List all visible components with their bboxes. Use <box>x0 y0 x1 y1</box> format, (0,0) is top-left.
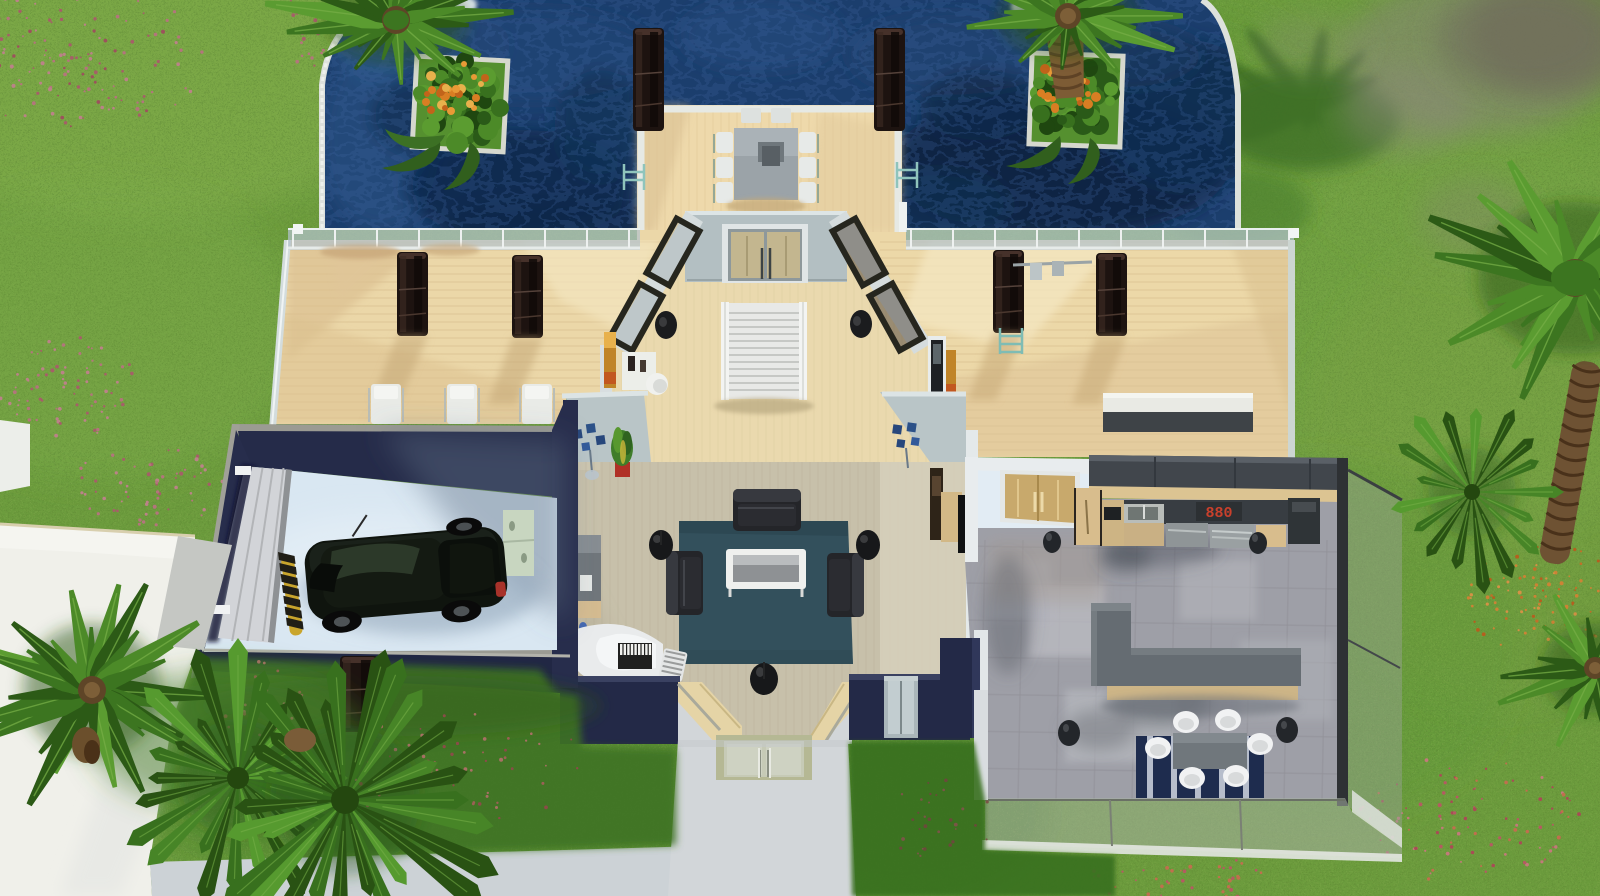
svg-text:880: 880 <box>1205 505 1232 522</box>
